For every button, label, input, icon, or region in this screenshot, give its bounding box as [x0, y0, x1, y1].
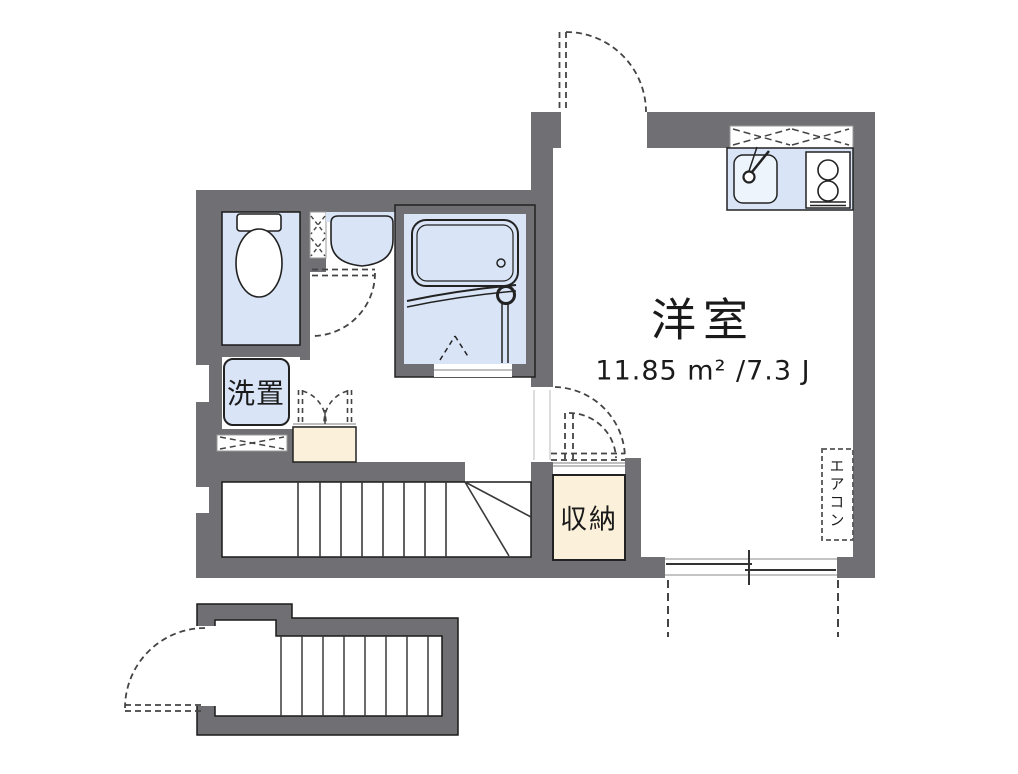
bathroom: [395, 205, 535, 377]
left-wall-window-lower: [196, 487, 209, 513]
pipe-space-window: [310, 212, 326, 258]
mini-closet: [293, 390, 356, 462]
storage-label: 収納: [560, 498, 618, 537]
aircon-label: エアコン: [827, 458, 848, 530]
washbasin-icon: [331, 216, 393, 266]
room-door-jamb: [534, 390, 550, 460]
storage-door-arcs: [551, 387, 625, 460]
lower-door-opening: [196, 626, 216, 706]
lower-entrance-door-arc: [125, 628, 205, 711]
room-name-label: 洋室: [651, 284, 755, 349]
entrance-opening: [561, 112, 647, 148]
balcony-boundary-dashes: [668, 580, 838, 637]
laundry-label: 洗置: [227, 372, 285, 412]
floor-plan: 洋室 11.85 m² /7.3 J 洗置 収納 エアコン: [0, 0, 1018, 774]
entrance-door-arc: [560, 32, 647, 112]
washroom-door-arc: [312, 270, 375, 337]
washbasin-area: [326, 212, 398, 266]
left-wall-window-upper: [196, 365, 209, 402]
staircase-lower: [125, 604, 458, 735]
bottom-wall-right: [837, 557, 875, 578]
stove-icon: [806, 152, 850, 208]
toilet-room: [222, 212, 300, 345]
right-wall: [853, 112, 875, 578]
kitchen-sink-icon: [734, 155, 777, 203]
kitchen: [727, 126, 853, 210]
floor-plan-drawing: [0, 0, 1018, 774]
center-wall-lower: [531, 462, 553, 578]
kitchen-window: [730, 126, 853, 148]
toilet-icon: [236, 214, 282, 297]
bathtub-icon: [412, 220, 518, 286]
staircase-upper: [222, 482, 531, 557]
room-area-label: 11.85 m² /7.3 J: [595, 356, 810, 387]
